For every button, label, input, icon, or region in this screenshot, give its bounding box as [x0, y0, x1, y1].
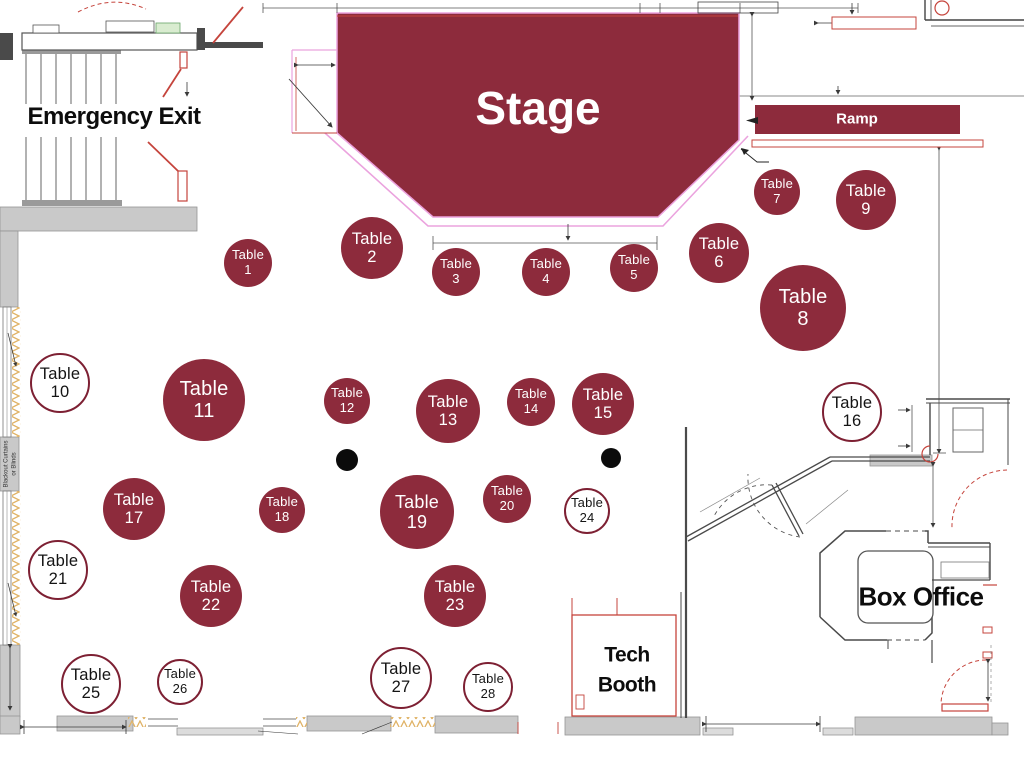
- tech-booth-outline: [572, 598, 676, 716]
- right-walls: [681, 86, 1024, 718]
- bottom-right-door: [941, 627, 992, 711]
- stairs: [22, 49, 122, 206]
- floor-plan: Stage Ramp Emergency Exit Box Office Tec…: [0, 0, 1024, 759]
- box-office-booth: [820, 531, 997, 663]
- top-left-walls: [0, 2, 263, 201]
- floor-plan-linework: [0, 0, 1024, 759]
- stage-shape: [325, 13, 983, 226]
- gray-walls: [0, 207, 1008, 735]
